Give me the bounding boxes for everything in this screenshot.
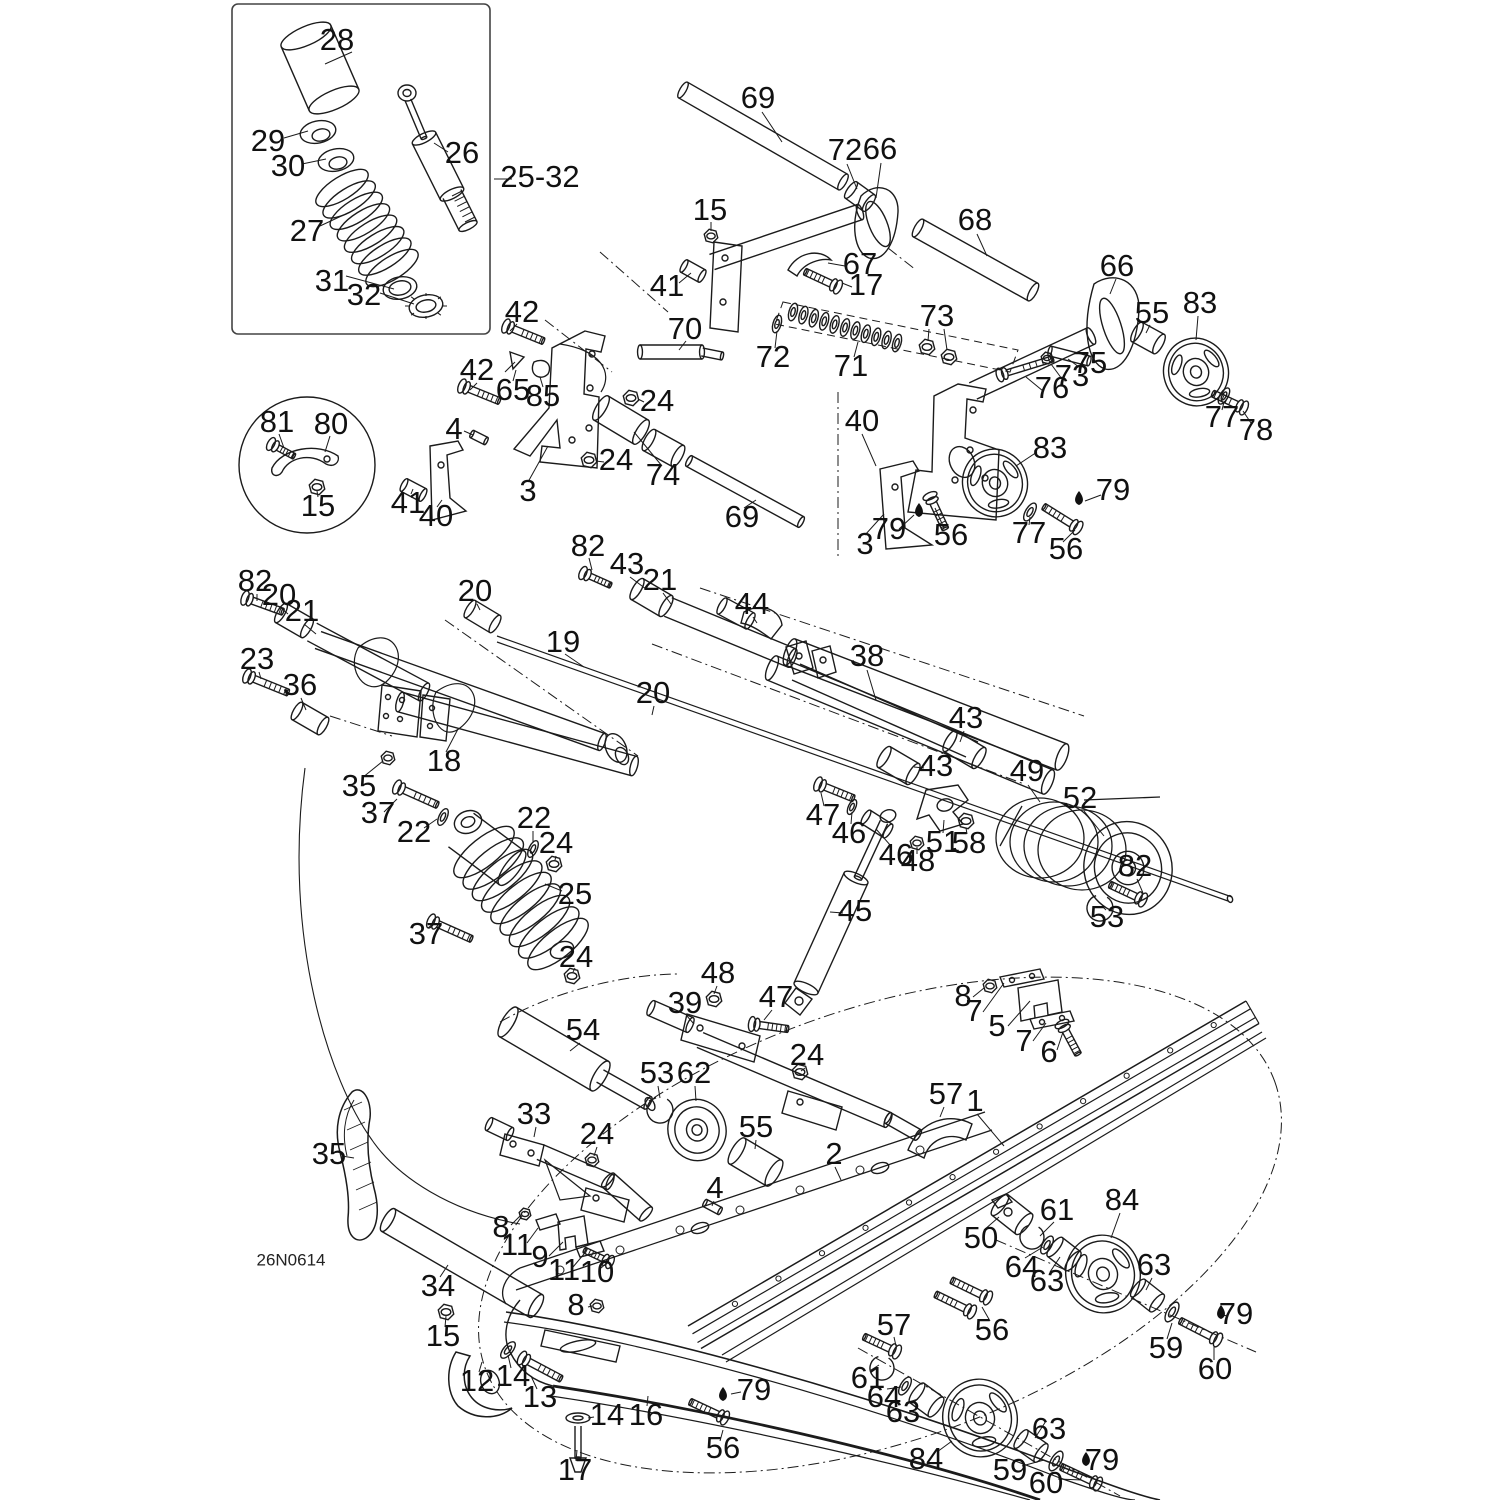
callout-57: 57: [929, 1076, 963, 1111]
callout-72: 72: [828, 132, 862, 167]
callout-31: 31: [315, 263, 349, 298]
callout-69: 69: [725, 499, 759, 534]
callout-82: 82: [571, 528, 605, 563]
callout-40: 40: [845, 403, 879, 438]
callout-4: 4: [445, 411, 462, 446]
callout-7: 7: [965, 993, 982, 1028]
callout-45: 45: [838, 893, 872, 928]
callout-50: 50: [964, 1220, 998, 1255]
callout-24: 24: [599, 442, 633, 477]
callout-54: 54: [566, 1012, 600, 1047]
callout-41: 41: [650, 268, 684, 303]
callout-24: 24: [640, 383, 674, 418]
callout-70: 70: [668, 311, 702, 346]
callout-40: 40: [419, 498, 453, 533]
callout-26: 26: [445, 135, 479, 170]
callout-20: 20: [458, 573, 492, 608]
oil-drop-icon: [1075, 491, 1083, 505]
callout-17: 17: [849, 267, 883, 302]
callout-24: 24: [539, 825, 573, 860]
callout-58: 58: [952, 825, 986, 860]
callout-11: 11: [501, 1227, 533, 1262]
callout-74: 74: [646, 457, 680, 492]
callout-24: 24: [559, 939, 593, 974]
callout-63: 63: [1030, 1263, 1064, 1298]
callout-16: 16: [629, 1397, 663, 1432]
callout-46: 46: [832, 815, 866, 850]
callout-72: 72: [756, 339, 790, 374]
callout-12: 12: [460, 1363, 494, 1398]
callout-43: 43: [949, 700, 983, 735]
callout-63: 63: [886, 1394, 920, 1429]
callout-36: 36: [283, 667, 317, 702]
callout-55: 55: [1135, 295, 1169, 330]
callout-9: 9: [531, 1239, 548, 1274]
callout-2: 2: [825, 1136, 842, 1171]
callout-56: 56: [1049, 531, 1083, 566]
callout-79: 79: [1096, 472, 1130, 507]
callout-19: 19: [546, 624, 580, 659]
callout-49: 49: [1010, 753, 1044, 788]
callout-4: 4: [706, 1170, 723, 1205]
callout-53: 53: [640, 1055, 674, 1090]
callout-53: 53: [1090, 899, 1124, 934]
callout-84: 84: [909, 1441, 943, 1476]
callout-66: 66: [863, 131, 897, 166]
callout-39: 39: [668, 985, 702, 1020]
callout-82: 82: [1118, 848, 1152, 883]
callout-28: 28: [320, 22, 354, 57]
callout-37: 37: [409, 916, 443, 951]
callout-56: 56: [934, 517, 968, 552]
callout-83: 83: [1033, 430, 1067, 465]
callout-43: 43: [919, 748, 953, 783]
callout-80: 80: [314, 406, 348, 441]
callout-20: 20: [636, 675, 670, 710]
callout-59: 59: [1149, 1330, 1183, 1365]
callout-15: 15: [693, 192, 727, 227]
callout-62: 62: [677, 1055, 711, 1090]
callout-23: 23: [240, 641, 274, 676]
callout-21: 21: [643, 562, 677, 597]
callout-73: 73: [920, 298, 954, 333]
callout-25: 25: [558, 876, 592, 911]
callout-14: 14: [590, 1397, 624, 1432]
callout-24: 24: [580, 1116, 614, 1151]
callout-85: 85: [526, 378, 560, 413]
callout-79: 79: [1219, 1296, 1253, 1331]
callout-3: 3: [519, 473, 536, 508]
callout-60: 60: [1029, 1465, 1063, 1500]
oil-drop-icon: [719, 1387, 727, 1401]
callout-48: 48: [701, 955, 735, 990]
callout-57: 57: [877, 1307, 911, 1342]
callout-10: 10: [580, 1254, 614, 1289]
callout-1: 1: [966, 1083, 983, 1118]
diagram-code: 26N0614: [256, 1250, 325, 1269]
callout-52: 52: [1063, 780, 1097, 815]
callout-3: 3: [856, 526, 873, 561]
callout-17: 17: [558, 1452, 592, 1487]
callout-25-32: 25-32: [500, 159, 579, 194]
callout-15: 15: [426, 1318, 460, 1353]
exploded-diagram-page: 26N0614 2829302731322625-328180156972661…: [0, 0, 1500, 1500]
callout-47: 47: [759, 979, 793, 1014]
callout-78: 78: [1239, 412, 1273, 447]
callout-69: 69: [741, 80, 775, 115]
callout-66: 66: [1100, 248, 1134, 283]
callout-35: 35: [312, 1136, 346, 1171]
callout-81: 81: [260, 404, 294, 439]
callout-68: 68: [958, 202, 992, 237]
callout-21: 21: [285, 593, 319, 628]
callout-43: 43: [610, 546, 644, 581]
callout-33: 33: [517, 1096, 551, 1131]
callout-63: 63: [1137, 1247, 1171, 1282]
callout-37: 37: [361, 795, 395, 830]
callout-42: 42: [460, 352, 494, 387]
callout-63: 63: [1032, 1411, 1066, 1446]
callout-71: 71: [834, 348, 868, 383]
callout-56: 56: [706, 1430, 740, 1465]
callout-22: 22: [397, 814, 431, 849]
callout-59: 59: [993, 1452, 1027, 1487]
callout-13: 13: [523, 1379, 557, 1414]
callout-77: 77: [1012, 515, 1046, 550]
callout-5: 5: [988, 1008, 1005, 1043]
callout-30: 30: [271, 148, 305, 183]
callout-79: 79: [1085, 1442, 1119, 1477]
oil-drop-icon: [915, 503, 923, 517]
callout-38: 38: [850, 638, 884, 673]
callout-34: 34: [421, 1268, 455, 1303]
callout-6: 6: [1040, 1034, 1057, 1069]
callout-79: 79: [737, 1372, 771, 1407]
callout-55: 55: [739, 1109, 773, 1144]
callout-42: 42: [505, 294, 539, 329]
callout-60: 60: [1198, 1351, 1232, 1386]
callout-7: 7: [1015, 1023, 1032, 1058]
callout-18: 18: [427, 743, 461, 778]
callout-83: 83: [1183, 285, 1217, 320]
callout-79: 79: [872, 511, 906, 546]
callout-27: 27: [290, 213, 324, 248]
callout-8: 8: [567, 1287, 584, 1322]
callout-77: 77: [1205, 399, 1239, 434]
callout-24: 24: [790, 1037, 824, 1072]
callout-44: 44: [735, 586, 769, 621]
callout-11: 11: [548, 1252, 580, 1287]
callout-61: 61: [1040, 1192, 1074, 1227]
rear-suspension-exploded-diagram: 26N0614 2829302731322625-328180156972661…: [0, 0, 1500, 1500]
callout-56: 56: [975, 1312, 1009, 1347]
callout-32: 32: [347, 277, 381, 312]
callout-15: 15: [301, 488, 335, 523]
callout-76: 76: [1035, 370, 1069, 405]
callout-84: 84: [1105, 1182, 1139, 1217]
